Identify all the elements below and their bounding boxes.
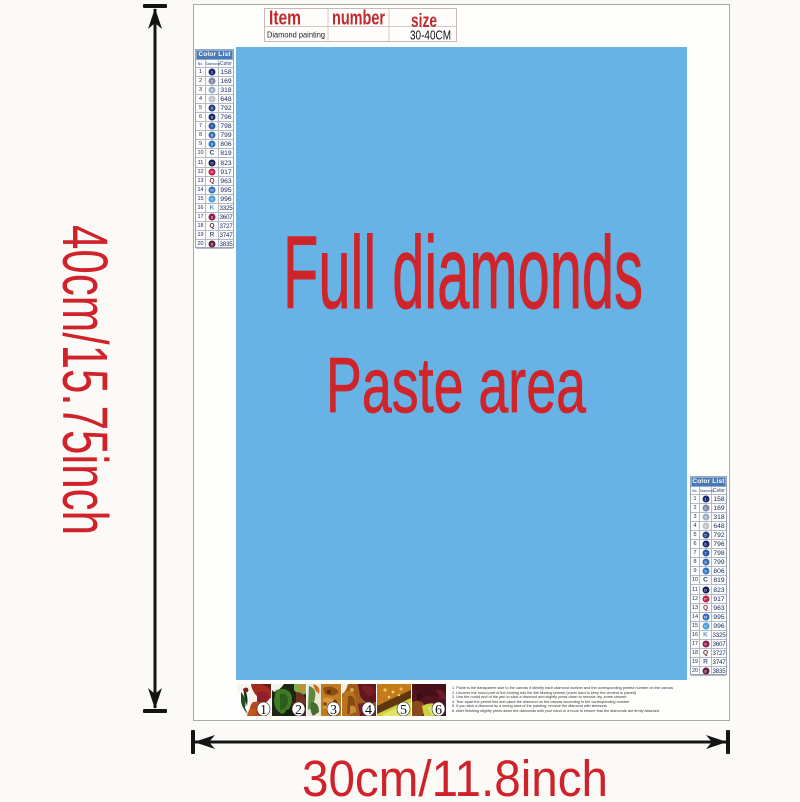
svg-text:6: 6: [435, 703, 442, 716]
svg-text:1: 1: [260, 703, 267, 716]
svg-text:Diamond painting: Diamond painting: [267, 31, 325, 40]
svg-text:30cm/11.8inch: 30cm/11.8inch: [302, 750, 608, 802]
svg-text:Paste area: Paste area: [326, 341, 586, 429]
svg-text:4: 4: [365, 703, 372, 716]
svg-text:number: number: [332, 8, 385, 30]
svg-text:Item: Item: [269, 8, 301, 30]
svg-text:40cm/15.75inch: 40cm/15.75inch: [49, 225, 121, 535]
svg-text:30-40CM: 30-40CM: [410, 28, 451, 43]
svg-text:5: 5: [400, 703, 407, 716]
svg-text:Full diamonds: Full diamonds: [283, 215, 643, 330]
svg-text:2: 2: [295, 703, 302, 716]
svg-text:3: 3: [330, 703, 337, 716]
